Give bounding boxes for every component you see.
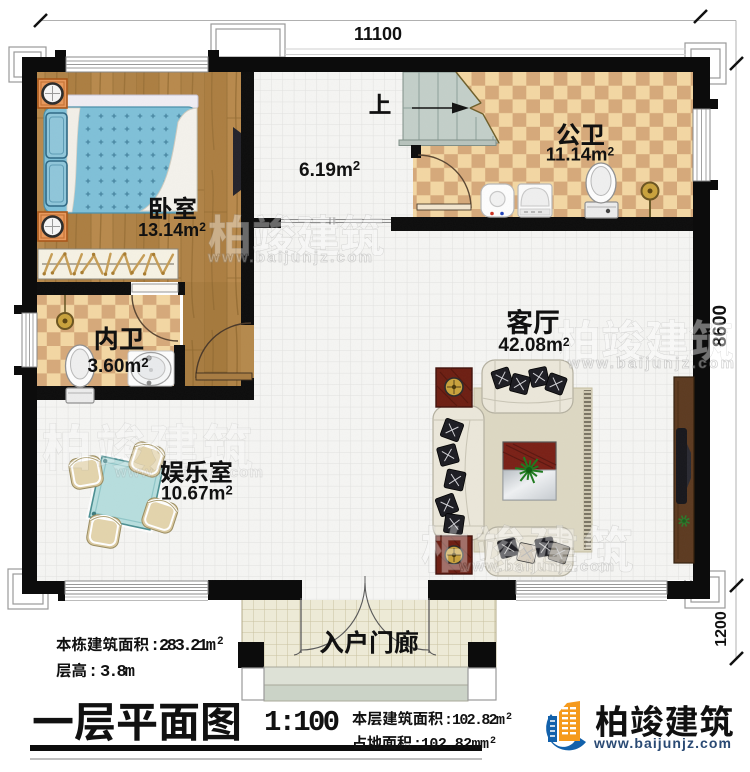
svg-text:www.baijunjz.com: www.baijunjz.com (593, 735, 732, 751)
svg-text:3.60m2: 3.60m2 (87, 355, 148, 377)
svg-text:2: 2 (506, 712, 512, 723)
svg-text:6.19m2: 6.19m2 (299, 158, 360, 181)
svg-text:102.82m: 102.82m (452, 712, 505, 729)
svg-text:283.21m: 283.21m (159, 637, 216, 656)
svg-text:102.82mm: 102.82mm (421, 736, 489, 753)
svg-text:1:100: 1:100 (264, 706, 340, 739)
svg-text:11.14m2: 11.14m2 (546, 144, 615, 165)
svg-text:2: 2 (217, 636, 224, 648)
svg-text:3.8m: 3.8m (100, 663, 135, 682)
svg-text:42.08m2: 42.08m2 (498, 335, 569, 356)
svg-text::: : (88, 663, 98, 682)
svg-text:13.14m2: 13.14m2 (138, 220, 206, 240)
svg-text:2: 2 (490, 736, 496, 747)
svg-text:10.67m2: 10.67m2 (161, 483, 233, 505)
svg-text:1200: 1200 (713, 611, 730, 647)
svg-text:11100: 11100 (354, 24, 402, 44)
